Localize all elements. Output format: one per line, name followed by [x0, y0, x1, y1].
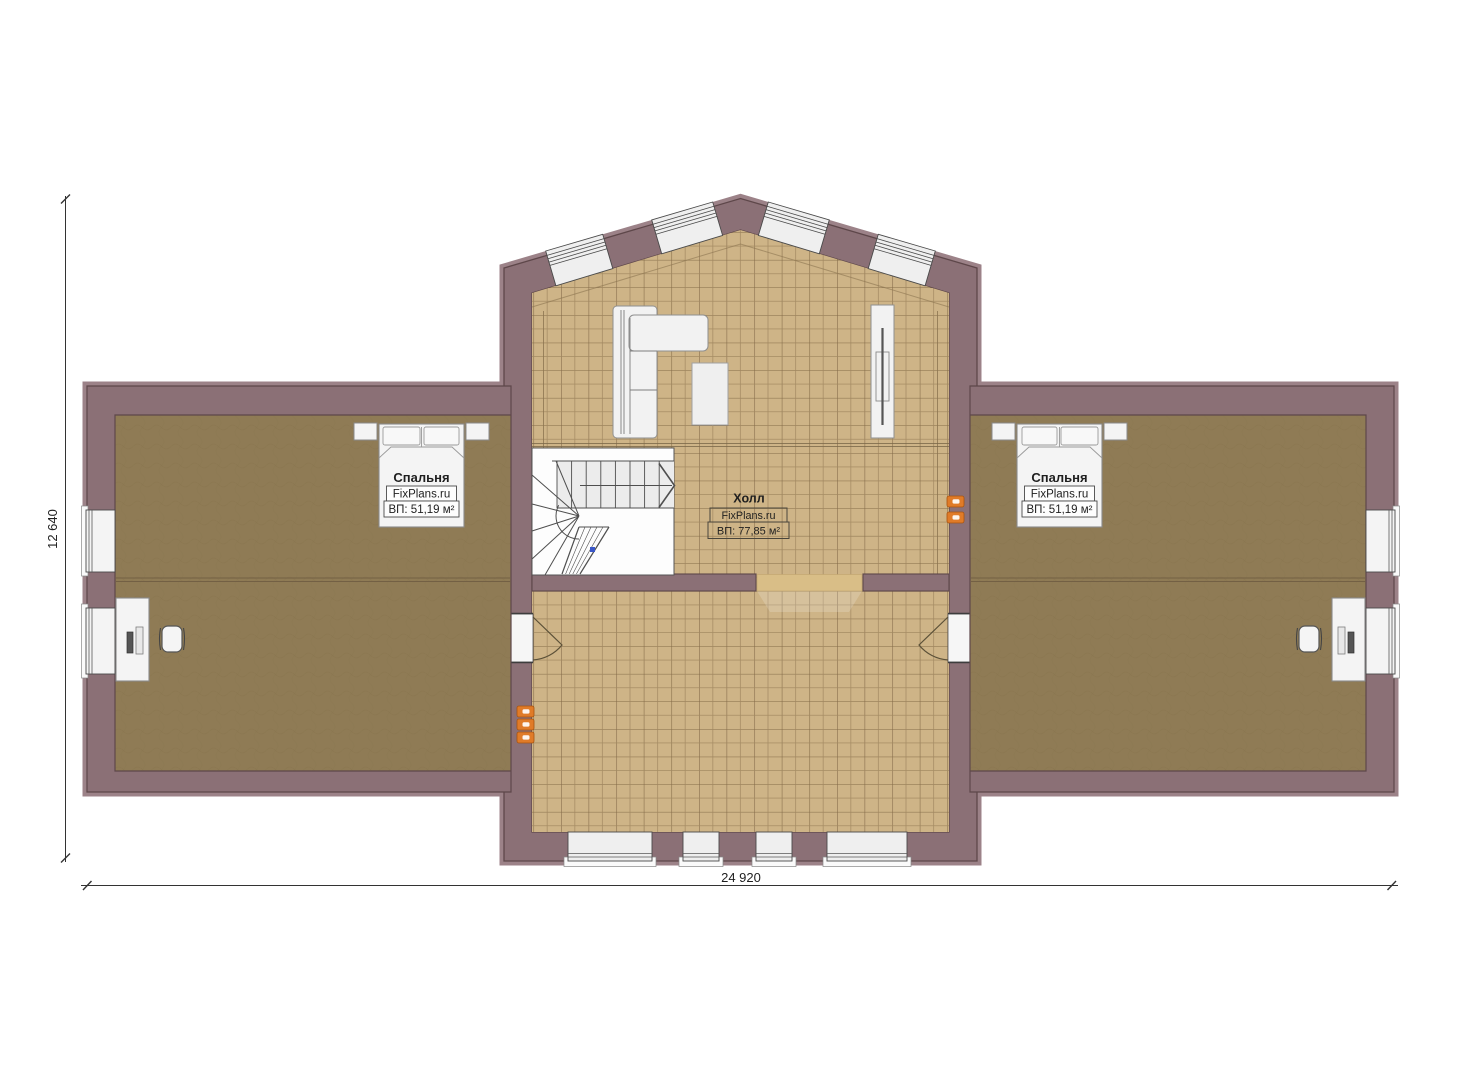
svg-text:Спальня: Спальня [393, 470, 449, 485]
svg-text:12 640: 12 640 [45, 509, 60, 549]
svg-text:ВП: 77,85 м²: ВП: 77,85 м² [717, 526, 781, 538]
svg-text:FixPlans.ru: FixPlans.ru [393, 489, 451, 501]
svg-text:FixPlans.ru: FixPlans.ru [1031, 489, 1089, 501]
svg-text:24 920: 24 920 [721, 870, 761, 885]
svg-text:ВП: 51,19 м²: ВП: 51,19 м² [388, 504, 454, 516]
svg-text:FixPlans.ru: FixPlans.ru [721, 510, 775, 522]
svg-text:ВП: 51,19 м²: ВП: 51,19 м² [1026, 504, 1092, 516]
svg-text:Холл: Холл [733, 492, 764, 506]
svg-text:Спальня: Спальня [1031, 470, 1087, 485]
